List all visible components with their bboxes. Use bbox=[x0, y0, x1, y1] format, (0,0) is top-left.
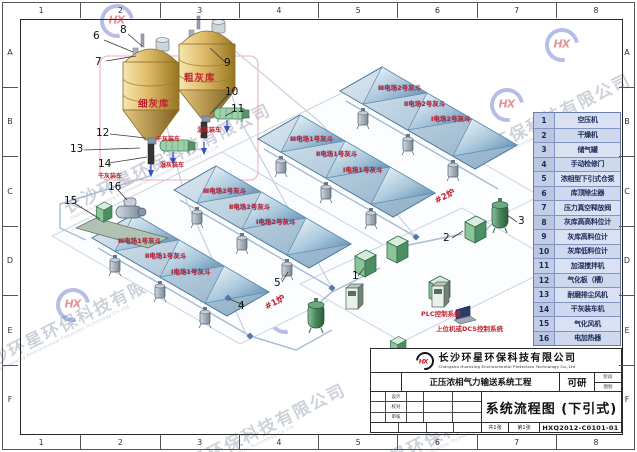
zone-cell: B bbox=[2, 87, 18, 157]
zone-strip-bottom: 1 2 3 4 5 6 7 8 bbox=[2, 434, 635, 450]
callout-15: 15 bbox=[64, 195, 77, 207]
title-row: 设计 校对 审核 系统流程图 (下引式) bbox=[371, 392, 621, 423]
zone-cell: 4 bbox=[239, 2, 318, 18]
zone-cell: A bbox=[2, 18, 18, 87]
callout-8: 8 bbox=[120, 24, 127, 36]
table-row: 5浓相型下引式仓泵 bbox=[534, 171, 620, 186]
sign-label: 设计 bbox=[386, 392, 407, 401]
stage-labels: 阶段 图别 bbox=[594, 373, 621, 391]
equipment-table: 1空压机 2干燥机 3储气罐 4手动检修门 5浓相型下引式仓泵 6库顶除尘器 7… bbox=[533, 112, 621, 346]
callout-16: 16 bbox=[108, 181, 121, 193]
callout-9: 9 bbox=[224, 57, 231, 69]
label-hopper: Ⅱ电场1号灰斗 bbox=[316, 148, 357, 158]
label-dry-ash-right: 干灰装车 bbox=[156, 134, 180, 143]
table-row: 6库顶除尘器 bbox=[534, 186, 620, 201]
callout-13: 13 bbox=[70, 143, 83, 155]
zone-cell: 7 bbox=[477, 2, 556, 18]
callout-4: 4 bbox=[238, 300, 245, 312]
table-row: 10灰库低料位计 bbox=[534, 244, 620, 259]
callout-7: 7 bbox=[95, 56, 102, 68]
label-wet-ash-left: 湿灰装车 bbox=[160, 160, 184, 169]
air-compressor-2 bbox=[387, 236, 408, 263]
company-header: HX 长沙环星环保科技有限公司 Changsha Huanxing Enviro… bbox=[371, 349, 621, 373]
table-row: 9灰库高料位计 bbox=[534, 229, 620, 244]
label-hopper: Ⅰ电场1号灰斗 bbox=[171, 266, 210, 276]
gas-tank-2 bbox=[308, 298, 324, 333]
stage-value: 可研 bbox=[559, 373, 594, 391]
zone-cell: 3 bbox=[160, 2, 239, 18]
bottom-grid bbox=[371, 423, 482, 432]
zone-cell: E bbox=[619, 295, 635, 365]
zone-cell: 1 bbox=[2, 434, 80, 450]
callout-5: 5 bbox=[274, 277, 281, 289]
label-hopper: Ⅲ电场1号灰斗 bbox=[290, 133, 333, 143]
callout-11: 11 bbox=[231, 103, 244, 115]
table-row: 11加湿搅拌机 bbox=[534, 258, 620, 273]
label-hopper: Ⅲ电场2号灰斗 bbox=[378, 82, 421, 92]
label-silo-coarse: 粗灰库 bbox=[184, 70, 216, 84]
zone-cell: C bbox=[2, 156, 18, 226]
dryer bbox=[465, 216, 486, 243]
zone-cell: B bbox=[619, 87, 635, 157]
zone-cell: 8 bbox=[556, 434, 635, 450]
label-dcs: 上位机或DCS控制系统 bbox=[436, 323, 503, 333]
callout-1: 1 bbox=[352, 270, 359, 282]
zone-strip-right: A B C D E F bbox=[619, 18, 635, 434]
sheet-number: 第1张 bbox=[509, 423, 540, 432]
zone-cell: 4 bbox=[239, 434, 318, 450]
zone-cell: F bbox=[2, 365, 18, 435]
table-row: 15气化风机 bbox=[534, 316, 620, 331]
zone-cell: D bbox=[619, 226, 635, 296]
sign-label: 校对 bbox=[386, 402, 407, 411]
callout-6: 6 bbox=[93, 30, 100, 42]
project-row: 正压浓相气力输送系统工程 可研 阶段 图别 bbox=[371, 373, 621, 392]
callout-3: 3 bbox=[518, 215, 525, 227]
sheet-total: 共1张 bbox=[482, 423, 509, 432]
table-row: 16电加热器 bbox=[534, 331, 620, 346]
callout-12: 12 bbox=[96, 127, 109, 139]
company-logo: HX bbox=[412, 348, 437, 373]
plc-cabinet-1 bbox=[346, 284, 363, 309]
zone-strip-left: A B C D E F bbox=[2, 18, 18, 434]
drawing-number: HXQ2012-C0101-01 bbox=[540, 423, 621, 432]
label-hopper: Ⅲ电场1号灰斗 bbox=[118, 235, 161, 245]
zone-cell: 3 bbox=[160, 434, 239, 450]
silo-coarse bbox=[179, 16, 249, 155]
company-name-cn: 长沙环星环保科技有限公司 bbox=[439, 353, 577, 364]
zone-strip-top: 1 2 3 4 5 6 7 8 bbox=[2, 2, 635, 18]
zone-cell: 8 bbox=[556, 2, 635, 18]
stage-label-bottom: 图别 bbox=[595, 382, 621, 392]
label-hopper: Ⅰ电场1号灰斗 bbox=[343, 164, 382, 174]
table-row: 8灰库高高料位计 bbox=[534, 215, 620, 230]
zone-cell: D bbox=[2, 226, 18, 296]
table-row: 14干灰装车机 bbox=[534, 302, 620, 317]
label-silo-fine: 细灰库 bbox=[138, 96, 170, 110]
company-name-en: Changsha Huanxing Environmental Protecti… bbox=[439, 364, 577, 369]
drawing-title: 系统流程图 (下引式) bbox=[482, 392, 621, 422]
project-name: 正压浓相气力输送系统工程 bbox=[402, 373, 559, 391]
zone-cell: A bbox=[619, 18, 635, 87]
plc-cabinet-2 bbox=[432, 282, 449, 307]
zone-cell: F bbox=[619, 365, 635, 435]
callout-10: 10 bbox=[225, 86, 238, 98]
callout-2: 2 bbox=[443, 232, 450, 244]
zone-cell: 5 bbox=[318, 2, 397, 18]
table-row: 1空压机 bbox=[534, 113, 620, 128]
bottom-row: 共1张 第1张 HXQ2012-C0101-01 bbox=[371, 423, 621, 432]
zone-cell: 6 bbox=[397, 2, 476, 18]
zone-cell: 7 bbox=[477, 434, 556, 450]
zone-cell: 5 bbox=[318, 434, 397, 450]
zone-cell: C bbox=[619, 156, 635, 226]
zone-cell: E bbox=[2, 295, 18, 365]
table-row: 12气化板（槽） bbox=[534, 273, 620, 288]
label-hopper: Ⅱ电场1号灰斗 bbox=[145, 250, 186, 260]
table-row: 13耐磨排尘风机 bbox=[534, 287, 620, 302]
zone-cell: 2 bbox=[80, 434, 159, 450]
empty-cell bbox=[371, 373, 402, 391]
label-hopper: Ⅱ电场2号灰斗 bbox=[404, 98, 445, 108]
table-row: 7压力真空释放阀 bbox=[534, 200, 620, 215]
zone-cell: 6 bbox=[397, 434, 476, 450]
signature-grid: 设计 校对 审核 bbox=[371, 392, 482, 422]
label-plc: PLC控制系统 bbox=[421, 308, 461, 318]
sign-label: 审核 bbox=[386, 413, 407, 422]
label-hopper: Ⅲ电场2号灰斗 bbox=[203, 185, 246, 195]
table-row: 4手动检修门 bbox=[534, 157, 620, 172]
label-hopper: Ⅰ电场2号灰斗 bbox=[431, 113, 470, 123]
label-hopper: Ⅰ电场2号灰斗 bbox=[256, 216, 295, 226]
title-block: HX 长沙环星环保科技有限公司 Changsha Huanxing Enviro… bbox=[370, 348, 622, 433]
zone-cell: 2 bbox=[80, 2, 159, 18]
drawing-sheet: 长沙环星环保科技有限公司Changsha Huanxing Environmen… bbox=[0, 0, 637, 452]
stage-label-top: 阶段 bbox=[595, 373, 621, 382]
zone-cell: 1 bbox=[2, 2, 80, 18]
label-hopper: Ⅱ电场2号灰斗 bbox=[229, 201, 270, 211]
label-dry-ash-left: 干灰装车 bbox=[98, 171, 122, 180]
label-wet-ash-right: 湿灰装车 bbox=[197, 125, 221, 134]
table-row: 3储气罐 bbox=[534, 142, 620, 157]
table-row: 2干燥机 bbox=[534, 128, 620, 143]
callout-14: 14 bbox=[98, 158, 111, 170]
